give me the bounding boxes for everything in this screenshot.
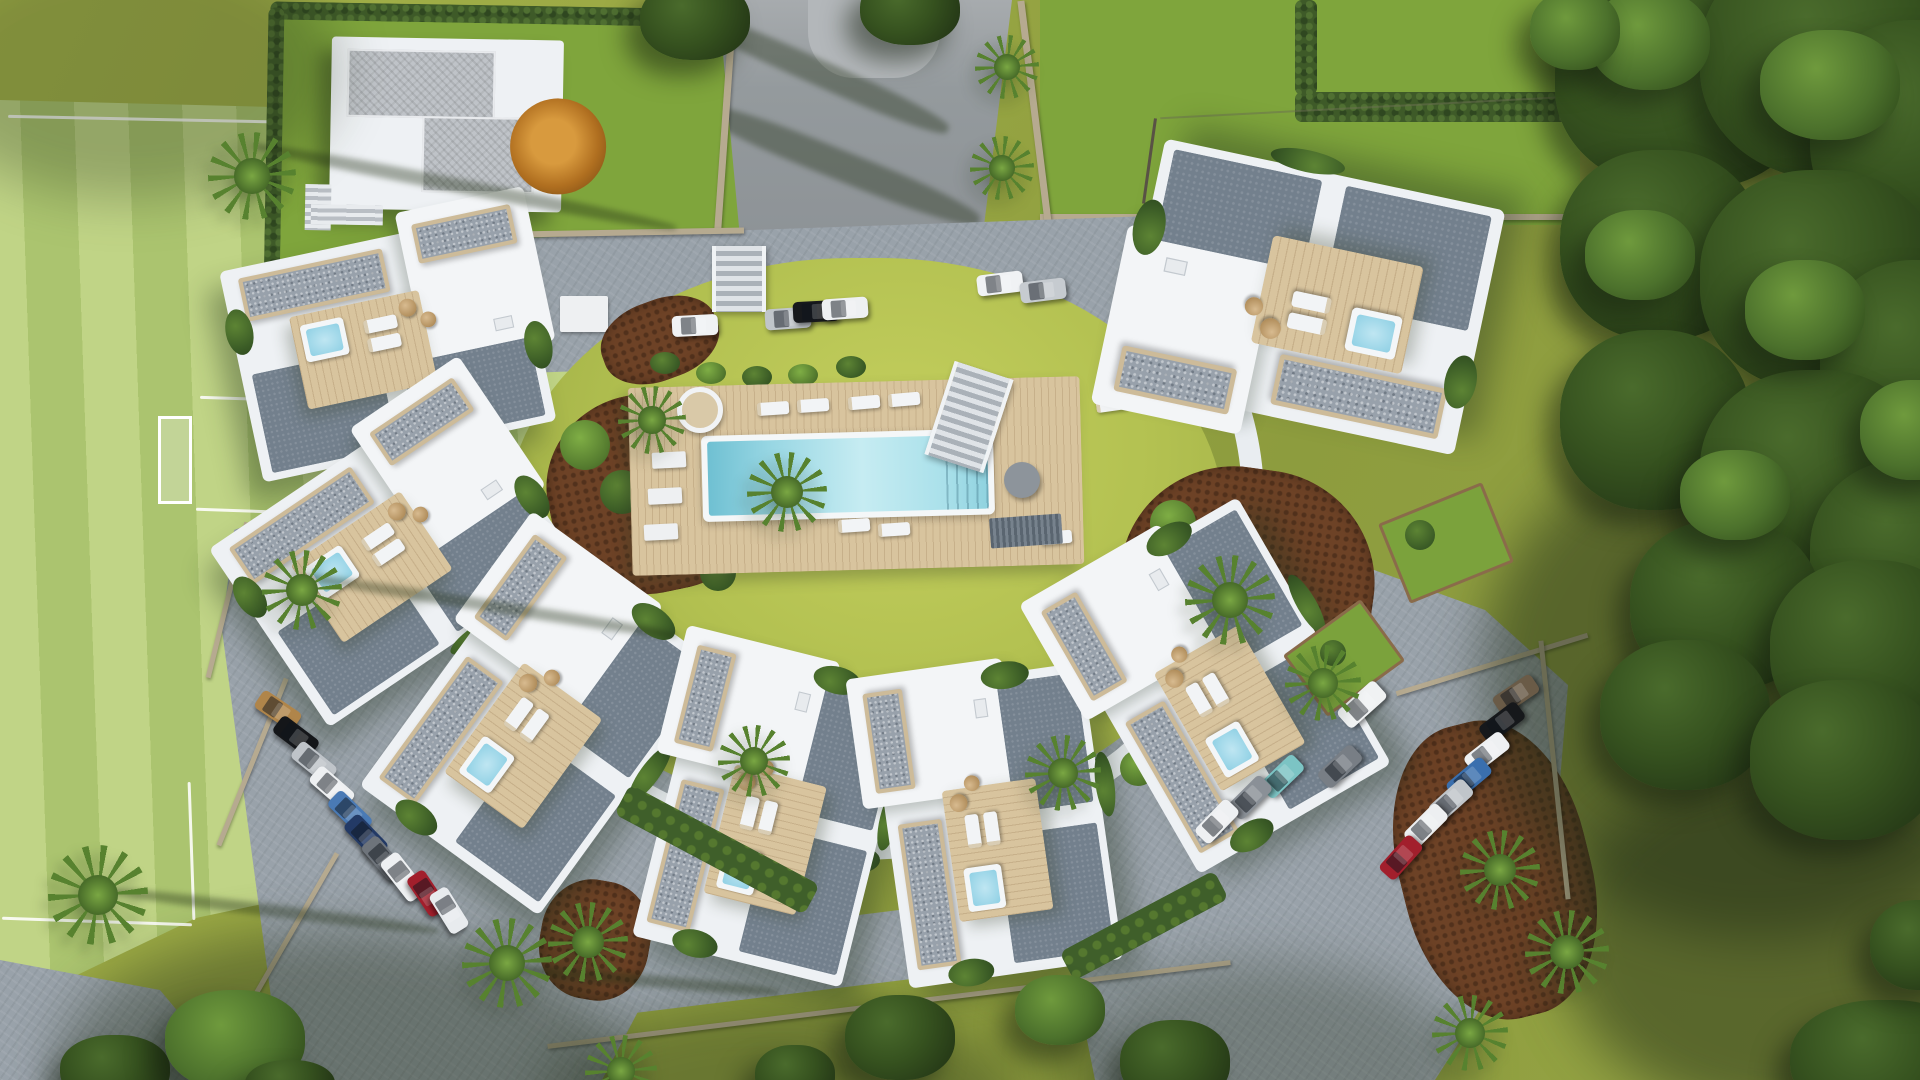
woodland <box>0 0 1920 1080</box>
aerial-development-render <box>0 0 1920 1080</box>
tree <box>1530 0 1620 70</box>
tree <box>1760 30 1900 140</box>
tree <box>860 0 960 45</box>
tree <box>845 995 955 1080</box>
tree <box>1680 450 1790 540</box>
tree <box>1015 975 1105 1045</box>
tree <box>1120 1020 1230 1080</box>
tree <box>60 1035 170 1080</box>
tree <box>1600 640 1770 790</box>
tree <box>1790 1000 1920 1080</box>
tree <box>755 1045 835 1080</box>
tree <box>1585 210 1695 300</box>
tree <box>1745 260 1865 360</box>
tree <box>1870 900 1920 990</box>
tree <box>640 0 750 60</box>
tree <box>1750 680 1920 840</box>
